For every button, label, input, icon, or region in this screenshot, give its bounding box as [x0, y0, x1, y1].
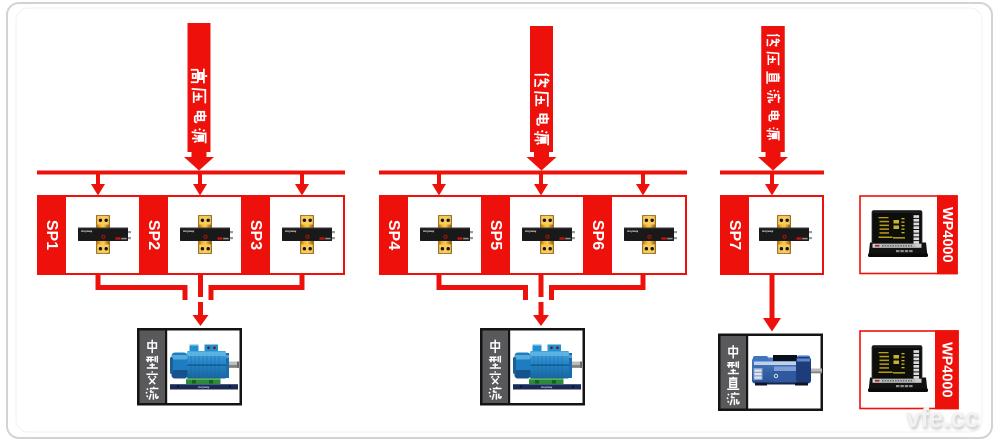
svg-text:vfe.cc: vfe.cc [906, 402, 979, 433]
svg-text:SP1: SP1 [43, 220, 60, 250]
svg-text:WP4000: WP4000 [939, 342, 955, 398]
svg-text:WP4000: WP4000 [939, 207, 955, 263]
svg-text:SP3: SP3 [247, 220, 264, 250]
svg-text:SP7: SP7 [726, 220, 743, 250]
svg-text:SP6: SP6 [589, 220, 606, 250]
svg-text:SP5: SP5 [487, 220, 504, 250]
svg-text:SP4: SP4 [385, 220, 402, 250]
svg-text:SP2: SP2 [145, 220, 162, 250]
